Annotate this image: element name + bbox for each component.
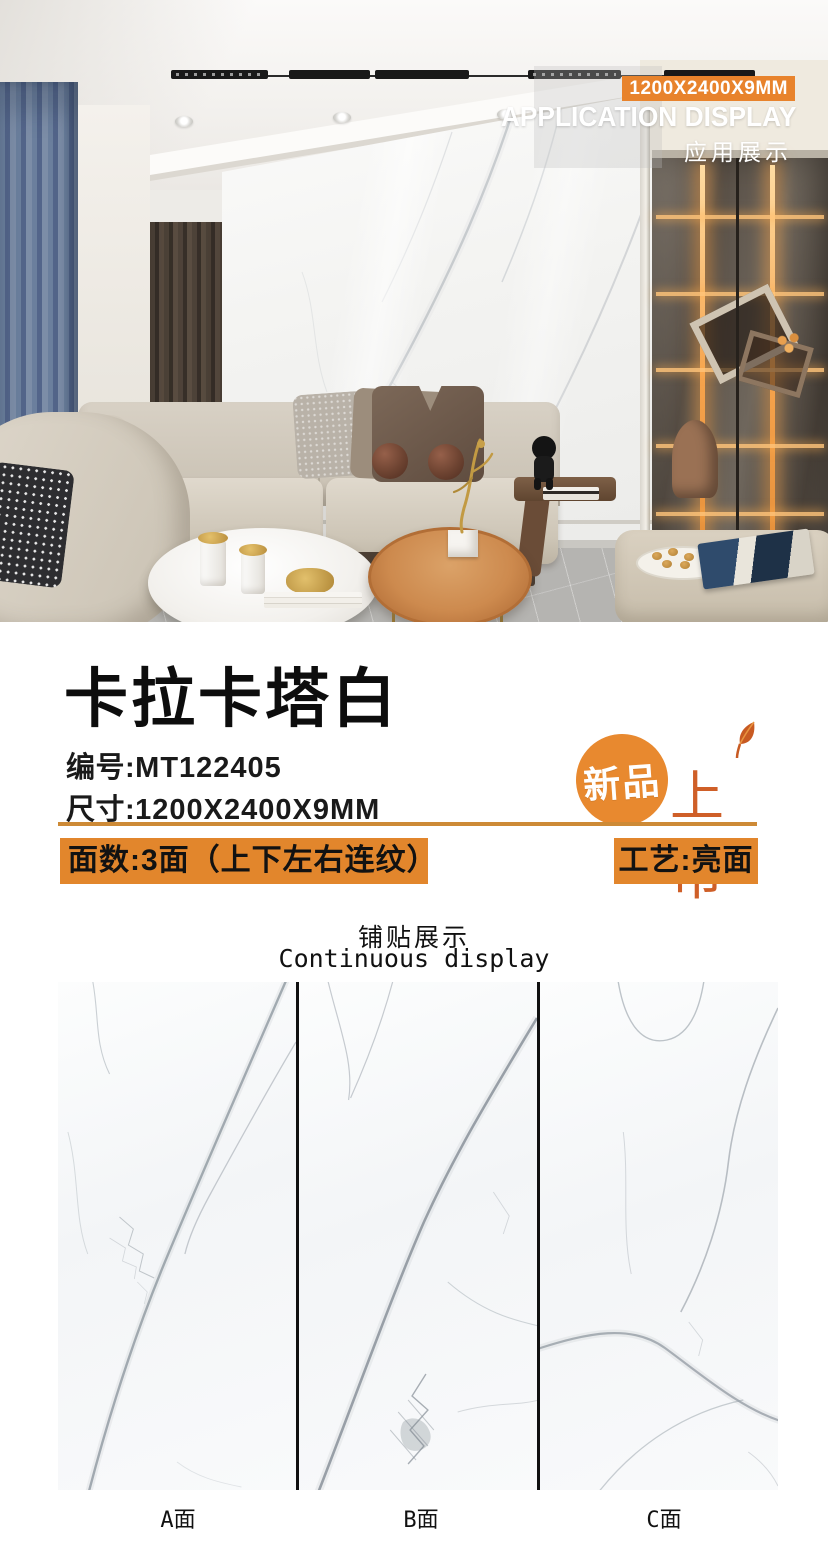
tile-panel-c bbox=[540, 982, 778, 1490]
application-display-title: APPLICATION DISPLAY bbox=[501, 101, 796, 133]
code-value: MT122405 bbox=[135, 752, 282, 784]
faces-bar: 面数:3面（上下左右连纹） bbox=[60, 838, 428, 884]
lit-shelf bbox=[656, 512, 824, 516]
size-badge: 1200X2400X9MM bbox=[622, 76, 795, 101]
divider-rule bbox=[58, 822, 757, 826]
reflected-plant bbox=[772, 330, 806, 356]
cookie bbox=[684, 553, 694, 561]
product-title: 卡拉卡塔白 bbox=[64, 648, 399, 740]
cookie bbox=[680, 561, 690, 569]
tile-panel-b bbox=[299, 982, 537, 1490]
track-light bbox=[289, 70, 370, 79]
decor-canister bbox=[241, 552, 265, 594]
new-arrival-badge-circle: 新品 bbox=[573, 731, 671, 829]
lit-shelf bbox=[656, 215, 824, 219]
paving-subtitle: Continuous display bbox=[0, 944, 828, 973]
code-label: 编号: bbox=[66, 752, 135, 784]
lit-shelf bbox=[656, 292, 824, 296]
finish-bar: 工艺:亮面 bbox=[614, 838, 758, 884]
product-code-row: 编号:MT122405 bbox=[66, 744, 282, 786]
figurine-leg bbox=[546, 478, 553, 490]
panel-label-c: C面 bbox=[624, 1502, 704, 1534]
hero-photo: 1200X2400X9MM APPLICATION DISPLAY 应用展示 bbox=[0, 0, 828, 622]
cookie bbox=[652, 552, 662, 560]
cookie bbox=[662, 560, 672, 568]
gold-ornament bbox=[286, 568, 334, 594]
panel-label-b: B面 bbox=[381, 1502, 461, 1534]
product-poster: 1200X2400X9MM APPLICATION DISPLAY 应用展示 卡… bbox=[0, 0, 828, 1559]
track-light bbox=[375, 70, 469, 79]
application-display-subtitle: 应用展示 bbox=[684, 133, 792, 167]
panel-label-a: A面 bbox=[138, 1502, 218, 1534]
cookie bbox=[668, 548, 678, 556]
tile-display bbox=[58, 982, 778, 1490]
downlight bbox=[333, 112, 351, 123]
leaf-icon bbox=[724, 718, 764, 763]
coffee-table-books bbox=[264, 592, 362, 608]
decor-canister bbox=[200, 540, 226, 586]
reflected-dining-chair bbox=[672, 420, 718, 498]
new-arrival-badge: 新品 上市 bbox=[576, 726, 762, 826]
ball-pillow bbox=[372, 443, 408, 479]
track-light-dots bbox=[176, 73, 263, 76]
new-arrival-badge-text: 上市 bbox=[670, 752, 762, 910]
downlight bbox=[175, 116, 193, 127]
tile-panel-a bbox=[58, 982, 296, 1490]
gold-dancer-sculpture bbox=[450, 438, 494, 543]
figurine-leg bbox=[534, 478, 541, 490]
